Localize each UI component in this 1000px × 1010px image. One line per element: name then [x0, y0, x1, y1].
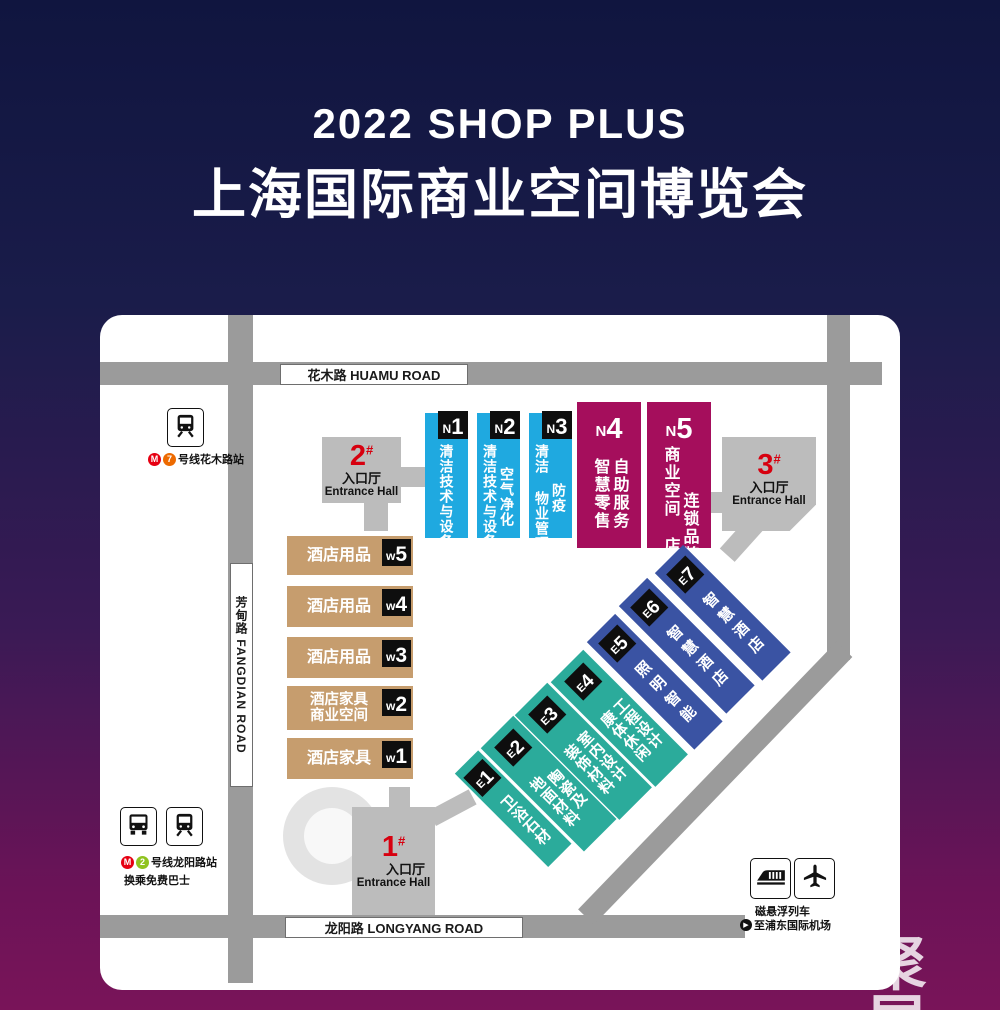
hall-n1-tag: N1	[438, 411, 468, 439]
entrance-hall-3-arm	[709, 492, 723, 513]
hall-n2: N2 空气净化清洁技术与设备	[477, 413, 520, 538]
huamu-station-box	[167, 408, 204, 447]
entrance-hall-2-text: 2# 入口厅 Entrance Hall	[322, 437, 401, 503]
airplane-icon	[801, 862, 829, 895]
road-right-vertical	[827, 315, 850, 660]
hall-w4-tag: w4	[382, 589, 411, 616]
entrance-hall-1: 1# 入口厅 Entrance Hall	[352, 807, 435, 915]
poster: 2022 SHOP PLUS 上海国际商业空间博览会 花木路 HUAMU ROA…	[0, 0, 1000, 1010]
play-circle-icon: ▶	[740, 919, 752, 931]
entrance-hall-2-stem	[364, 503, 388, 531]
hall-n5-tag: N5	[647, 402, 711, 442]
line-2-badge: 2	[136, 856, 149, 869]
entrance-hall-1-text: 1# 入口厅 Entrance Hall	[352, 807, 435, 915]
maglev-label-line2: ▶ 至浦东国际机场	[740, 917, 831, 933]
hall-n3: N3 防疫清洁 物业管理	[529, 413, 572, 538]
entrance-hall-1-number: 1#	[382, 833, 405, 862]
title-cn: 上海国际商业空间博览会	[0, 150, 1000, 229]
hall-w3: 酒店用品 w3	[287, 637, 413, 678]
title-en: 2022 SHOP PLUS	[0, 100, 1000, 148]
longyang-station-note: 换乘免费巴士	[124, 872, 190, 888]
maglev-box	[750, 858, 791, 899]
hall-n4: N4 自助服务智慧零售	[577, 402, 641, 548]
juzhan-watermark: 聚展	[866, 934, 1000, 1010]
entrance-hall-2: 2# 入口厅 Entrance Hall	[322, 437, 401, 503]
hall-w2: 酒店家具商业空间 w2	[287, 686, 413, 730]
metro-logo: M	[148, 453, 161, 466]
hall-n3-text: 防疫清洁 物业管理	[529, 440, 572, 558]
train-front-icon	[172, 412, 199, 444]
hall-n1: N1 清洁技术与设备	[425, 413, 468, 538]
longyang-bus-box	[120, 807, 157, 846]
metro-logo: M	[121, 856, 134, 869]
hall-n5: N5 连锁品牌商业空间 店铺陈列	[647, 402, 711, 548]
maglev-train-icon	[756, 864, 786, 893]
train-front-icon	[171, 811, 198, 843]
hall-w1-tag: w1	[382, 741, 411, 768]
entrance-hall-3: 3# 入口厅 Entrance Hall	[722, 437, 816, 531]
hall-n3-tag: N3	[542, 411, 572, 439]
road-huamu	[100, 362, 882, 385]
entrance-hall-3-number: 3#	[757, 451, 780, 480]
hall-w1: 酒店家具 w1	[287, 738, 413, 779]
hall-w4: 酒店用品 w4	[287, 586, 413, 627]
hall-n2-text: 空气净化清洁技术与设备	[477, 440, 520, 556]
hall-w2-tag: w2	[382, 689, 411, 716]
entrance-hall-3-text: 3# 入口厅 Entrance Hall	[722, 437, 816, 531]
road-label-longyang: 龙阳路 LONGYANG ROAD	[285, 917, 523, 938]
entrance-hall-2-number: 2#	[350, 442, 373, 471]
venue-map: 花木路 HUAMU ROAD 芳甸路 FANGDIAN ROAD 龙阳路 LON…	[100, 315, 900, 990]
road-label-huamu: 花木路 HUAMU ROAD	[280, 364, 468, 385]
entrance-hall-1-arm	[428, 789, 477, 826]
longyang-train-box	[166, 807, 203, 846]
hall-w5: 酒店用品 w5	[287, 536, 413, 575]
entrance-hall-1-tab	[389, 787, 410, 809]
longyang-station-label: M 2 号线龙阳路站	[121, 854, 217, 870]
huamu-station-label: M 7 号线花木路站	[148, 451, 244, 467]
hall-n1-text: 清洁技术与设备	[425, 440, 468, 556]
bus-icon	[125, 811, 152, 843]
hall-n4-text: 自助服务智慧零售	[577, 442, 641, 548]
hall-w3-tag: w3	[382, 640, 411, 667]
road-label-fangdian: 芳甸路 FANGDIAN ROAD	[230, 563, 253, 787]
airport-box	[794, 858, 835, 899]
hall-n4-tag: N4	[577, 402, 641, 442]
hall-n2-tag: N2	[490, 411, 520, 439]
line-7-badge: 7	[163, 453, 176, 466]
hall-w5-tag: w5	[382, 539, 411, 566]
